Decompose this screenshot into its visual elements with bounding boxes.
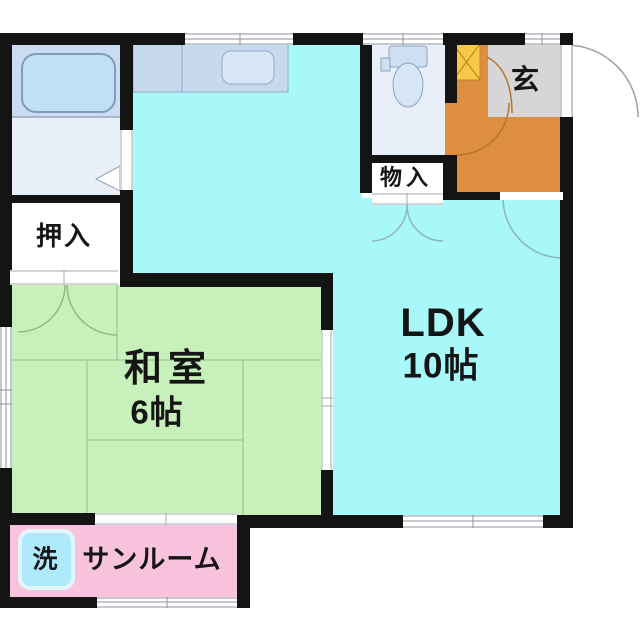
front-door-opening xyxy=(560,45,573,117)
kitchen-window xyxy=(185,33,293,45)
wall-washitsu-bottom xyxy=(0,513,95,525)
bathtub-icon xyxy=(22,54,115,112)
wall-monoire-left xyxy=(360,163,372,193)
toilet-window xyxy=(363,33,443,45)
hall-floor-main xyxy=(453,117,563,193)
hall-ldk-door-opening xyxy=(500,192,563,200)
wall-washitsu-right-upper xyxy=(321,275,333,330)
wall-toilet-right xyxy=(445,43,457,103)
washitsu-ldk-door-track xyxy=(321,330,333,470)
wall-kitchen-bottom xyxy=(120,273,333,287)
wall-bath-kitchen-upper xyxy=(120,43,133,130)
kitchen-counter-icon xyxy=(133,43,288,92)
wall-top-b xyxy=(293,33,363,45)
oshiire-label: 押入 xyxy=(36,223,92,249)
shoe-cabinet-icon xyxy=(453,44,480,80)
washitsu-window xyxy=(0,327,12,468)
monoire-label: 物入 xyxy=(380,167,432,189)
wall-sunroom-right xyxy=(237,515,250,608)
wall-oshiire-top xyxy=(0,195,133,203)
genkan-label: 玄 xyxy=(511,66,541,94)
genkan-window xyxy=(525,33,560,45)
washroom-door-opening xyxy=(120,130,133,190)
wall-monoire-top xyxy=(360,155,457,163)
floorplan-canvas: 押入 物入 玄 和室 6帖 LDK 10帖 サンルーム 洗 xyxy=(0,0,640,640)
laundry-label: 洗 xyxy=(32,548,59,573)
wall-sunroom-left xyxy=(0,513,10,608)
oshiire-door-track xyxy=(10,270,118,285)
wall-top-corner xyxy=(560,33,573,45)
sunroom-window xyxy=(97,597,237,608)
wall-bottom-b xyxy=(543,515,573,528)
ldk-size-label: 10帖 xyxy=(403,349,480,384)
wall-right-main xyxy=(560,117,573,528)
wall-toilet-left xyxy=(360,43,372,155)
washitsu-size-label: 6帖 xyxy=(130,396,183,429)
wall-genkan-bottom xyxy=(443,192,500,200)
wall-bath-kitchen-lower xyxy=(120,190,133,287)
ldk-bottom-window xyxy=(403,515,543,528)
washitsu-label: 和室 xyxy=(124,350,212,388)
wall-sunroom-bottom xyxy=(0,597,97,608)
wall-top-a xyxy=(0,33,185,45)
monoire-door-track xyxy=(372,193,443,205)
washitsu-sunroom-door-track xyxy=(95,513,237,525)
sunroom-label: サンルーム xyxy=(82,547,221,574)
ldk-label: LDK xyxy=(400,303,485,343)
kitchen-sink-icon xyxy=(222,51,274,84)
wall-bottom-a xyxy=(237,515,403,528)
